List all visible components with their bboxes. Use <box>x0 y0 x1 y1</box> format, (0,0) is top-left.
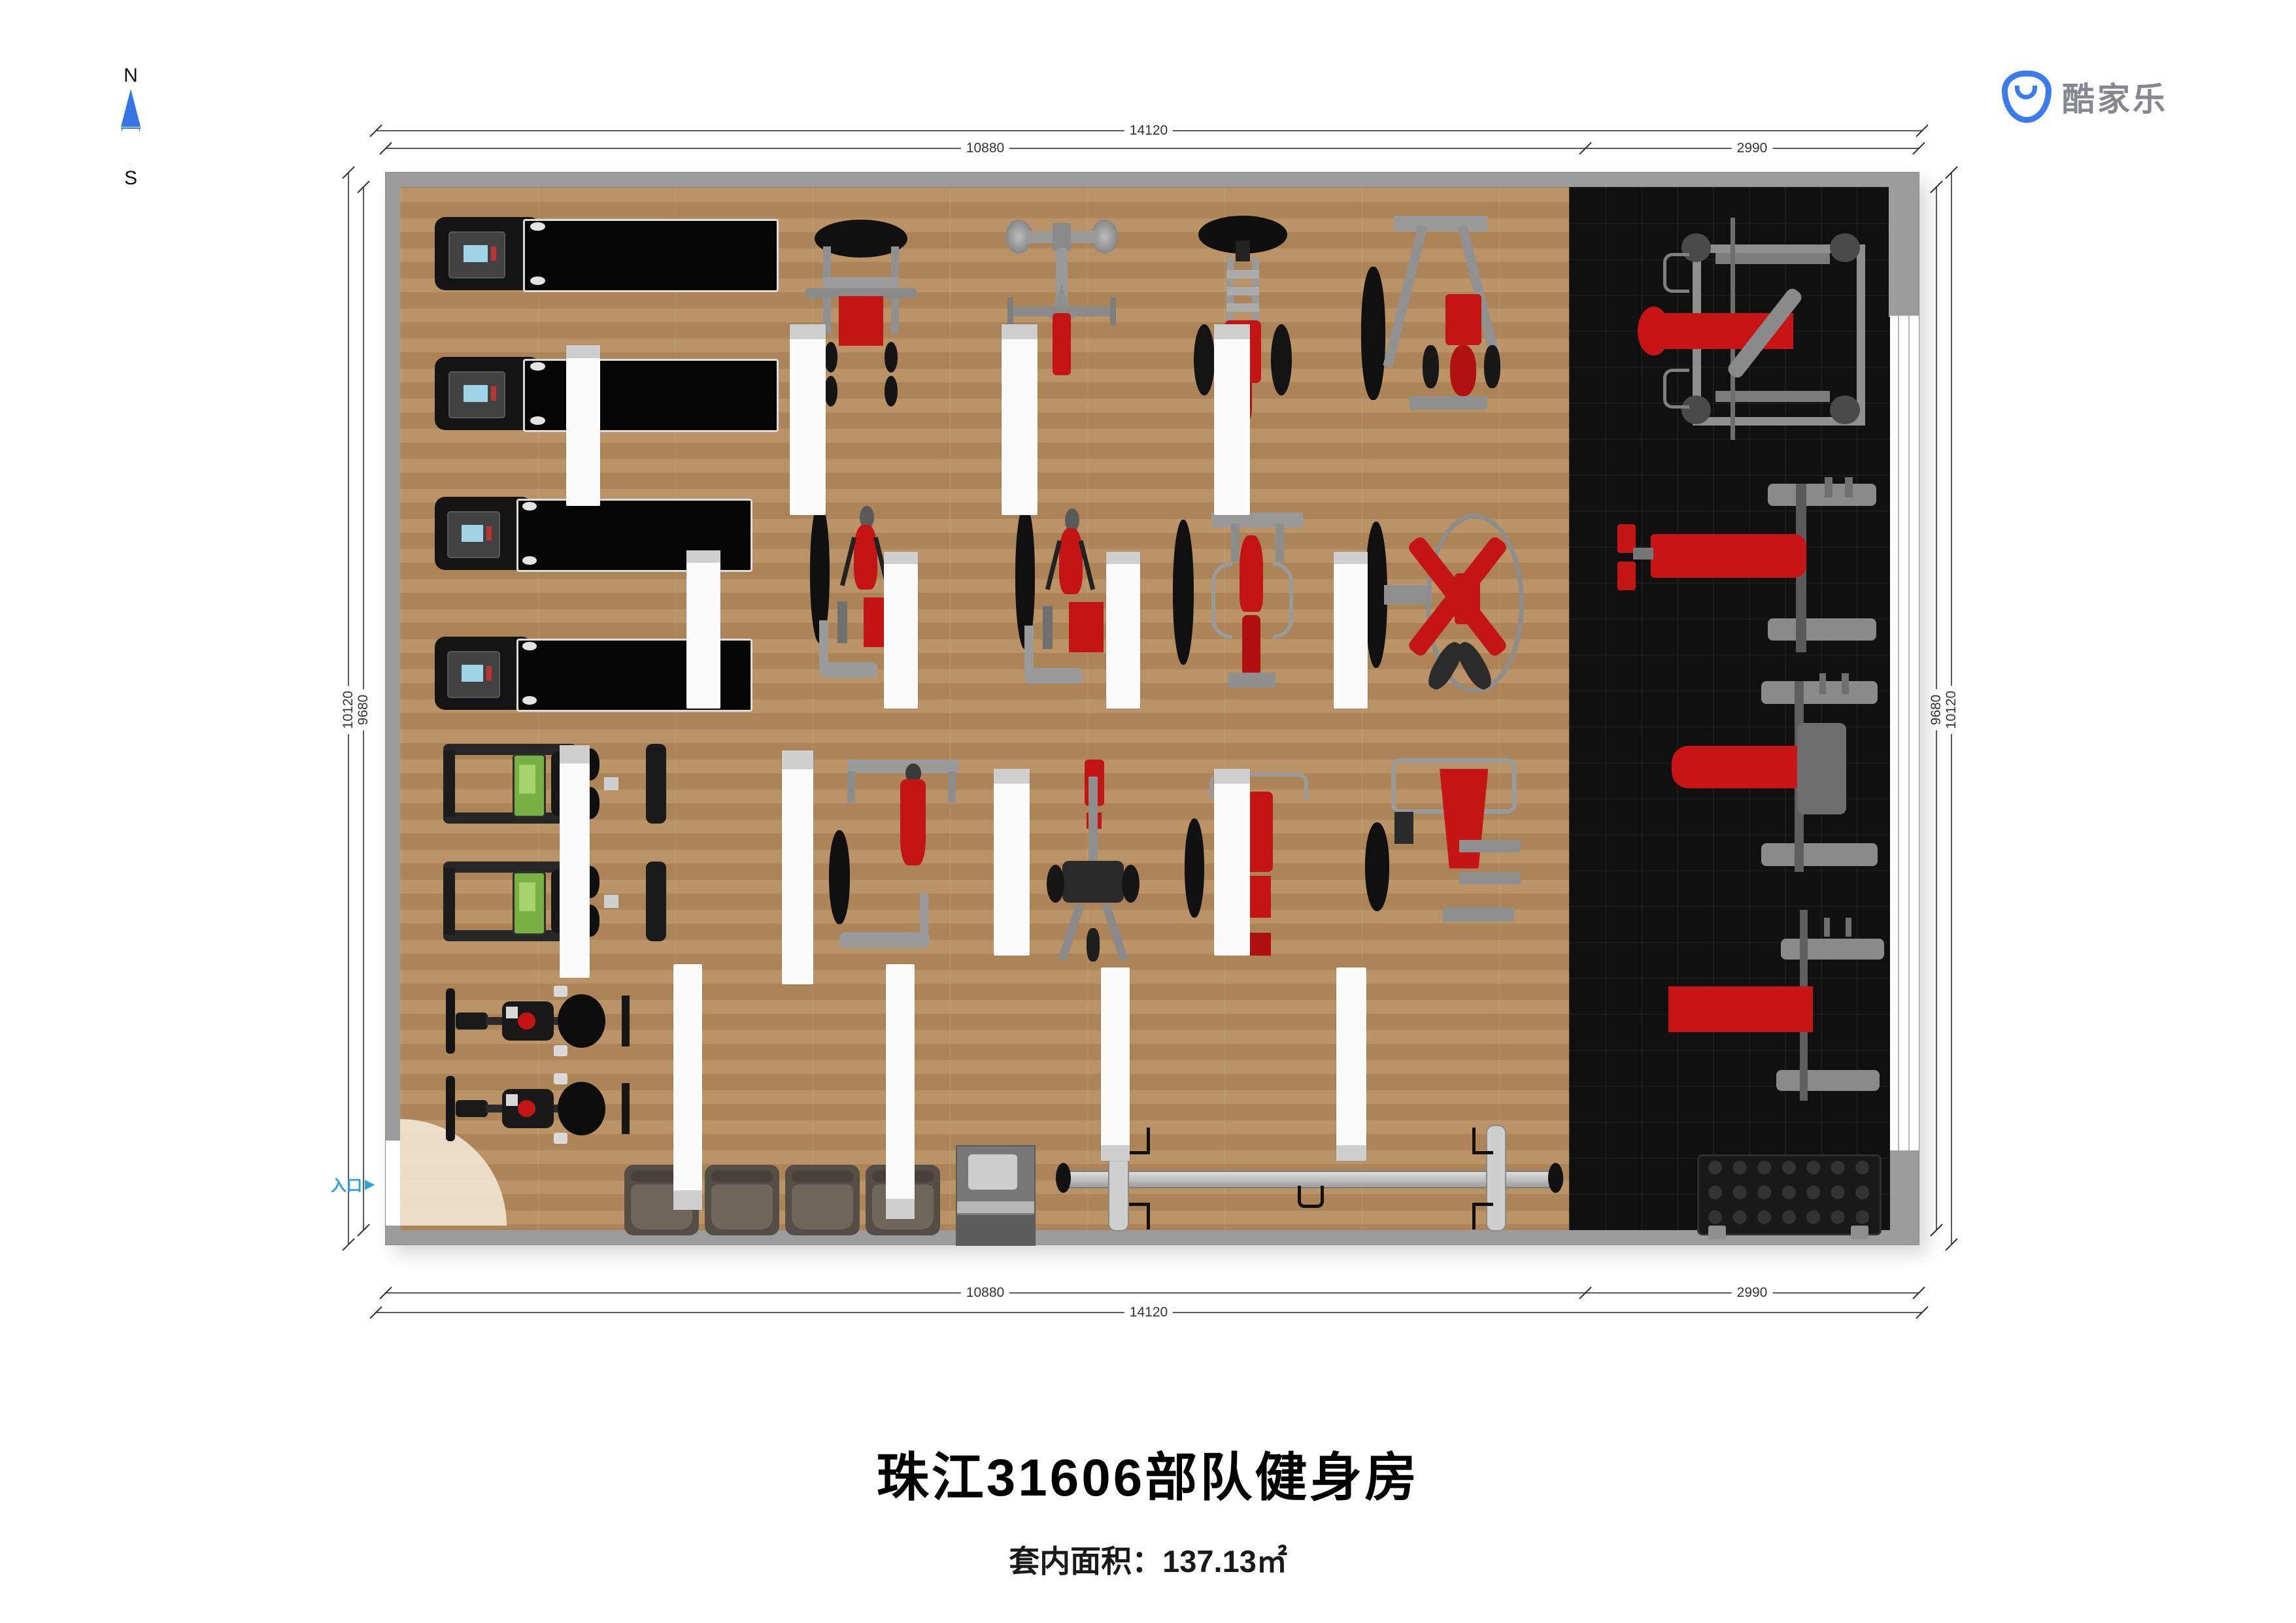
mat[interactable] <box>884 552 918 709</box>
dumbbell-rack[interactable] <box>1697 1154 1882 1235</box>
mat[interactable] <box>673 964 702 1210</box>
spin-bike[interactable] <box>442 1073 641 1144</box>
barbell[interactable] <box>1058 1123 1561 1231</box>
page-title: 珠江31606部队健身房 <box>0 1435 2296 1511</box>
treadmill[interactable] <box>435 217 775 290</box>
station-sym[interactable] <box>1173 505 1311 695</box>
mat[interactable] <box>886 964 915 1219</box>
bench-head[interactable] <box>1617 484 1876 652</box>
title-block: 珠江31606部队健身房 套内面积：137.13㎡ <box>0 1435 2296 1581</box>
dim-top-right: 2990 <box>1732 141 1773 156</box>
bench-back[interactable] <box>1654 681 1878 872</box>
mat[interactable] <box>1334 552 1368 709</box>
mat[interactable] <box>782 750 813 984</box>
rower[interactable] <box>443 744 673 824</box>
entrance-text: 入口 <box>331 1173 362 1196</box>
dim-right-outer: 10120 <box>1944 686 1959 734</box>
mat[interactable] <box>1101 967 1130 1161</box>
mat[interactable] <box>1214 769 1250 956</box>
mat[interactable] <box>560 745 590 978</box>
pulldown[interactable] <box>829 760 958 956</box>
mat[interactable] <box>1214 324 1250 515</box>
mat[interactable] <box>1106 552 1140 709</box>
chair[interactable] <box>705 1165 779 1235</box>
floorplan-page: N S 酷家乐 14120 10880 2990 10880 299 <box>0 0 2296 1623</box>
dim-bottom-total: 14120 <box>1124 1305 1173 1320</box>
dim-bottom-right: 2990 <box>1732 1285 1773 1301</box>
mat[interactable] <box>994 769 1030 956</box>
dim-left-outer: 10120 <box>341 686 356 734</box>
chair[interactable] <box>785 1165 860 1235</box>
smith-machine[interactable] <box>1633 218 1862 440</box>
mat[interactable] <box>790 324 826 515</box>
pec-fly[interactable] <box>1365 502 1525 699</box>
spin-bike[interactable] <box>442 986 641 1056</box>
treadmill[interactable] <box>435 357 775 430</box>
bench-plain[interactable] <box>1668 910 1884 1101</box>
entrance-arrow-icon: ▶ <box>365 1176 375 1192</box>
mat[interactable] <box>686 550 720 709</box>
mat[interactable] <box>566 345 600 506</box>
dim-bottom-left: 10880 <box>961 1285 1009 1301</box>
dim-top-left: 10880 <box>961 141 1009 156</box>
mat[interactable] <box>1002 324 1038 515</box>
incline-press[interactable] <box>1365 758 1527 936</box>
rower[interactable] <box>443 862 673 941</box>
dim-right-inner: 9680 <box>1929 690 1944 731</box>
platform[interactable] <box>956 1145 1036 1246</box>
entrance-label: 入口 ▶ <box>331 1173 375 1196</box>
dim-left-inner: 9680 <box>356 690 371 731</box>
area-subtitle: 套内面积：137.13㎡ <box>0 1536 2296 1581</box>
mat[interactable] <box>1336 967 1366 1161</box>
dim-top-total: 14120 <box>1124 123 1173 139</box>
cable-column[interactable] <box>1038 760 1148 970</box>
station-d[interactable] <box>1361 216 1523 412</box>
floorplan <box>386 173 1919 1245</box>
